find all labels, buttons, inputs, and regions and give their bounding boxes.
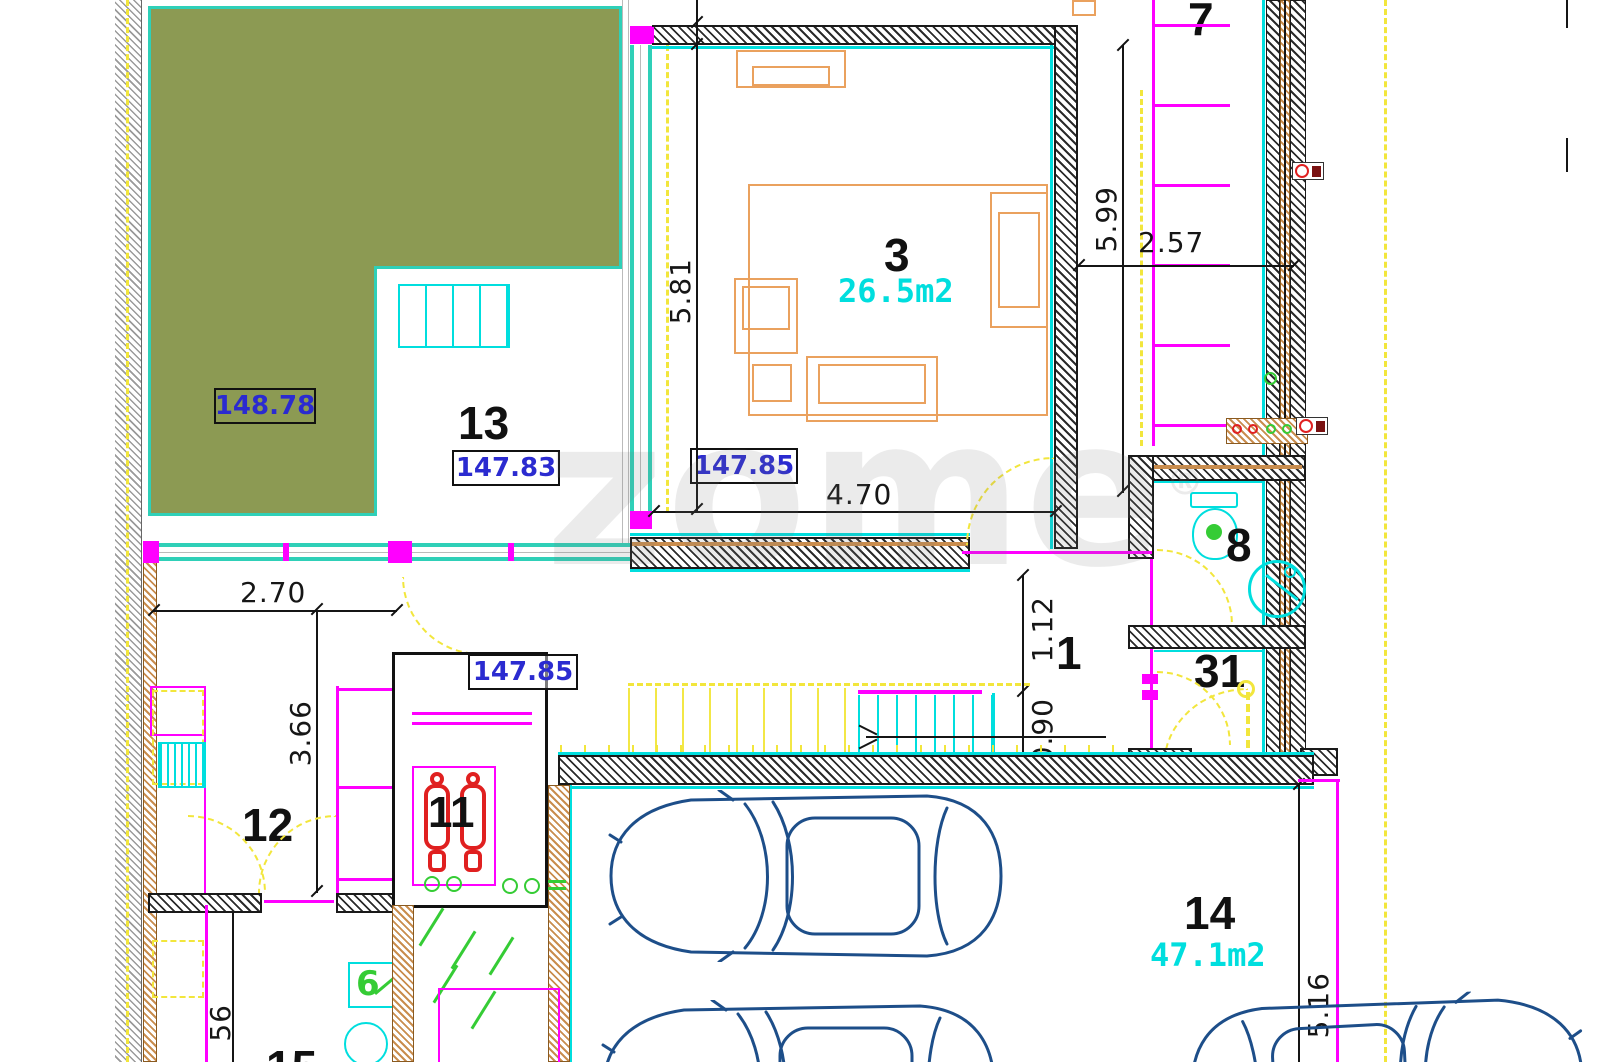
left-boundary-dashed-line (126, 0, 129, 1062)
lift-rail (412, 722, 532, 725)
dim-room7-height: 5.99 (1090, 186, 1123, 252)
window-tick (283, 543, 289, 561)
right-property-dashed-line (1384, 0, 1387, 1062)
elevation-box-room13: 147.83 (452, 450, 560, 486)
yellow-door-knob (1237, 680, 1255, 698)
floor-plan: 148.78 13 147.83 3 26.5m2 147.85 5.81 (0, 0, 1600, 1062)
bottom-partition-wall (392, 905, 414, 1062)
elevation-hall: 147.85 (473, 657, 573, 687)
wardrobe-shelf (1152, 24, 1230, 27)
car-top-view-partial (588, 1000, 1008, 1062)
corridor-cabinet-side (336, 686, 339, 894)
dim-room3-height: 5.81 (664, 258, 697, 324)
room12-bottom-door (264, 900, 334, 903)
dim-room12-height: 3.66 (284, 700, 317, 766)
stair-nosing (858, 690, 982, 694)
cabinet-shelf (336, 878, 396, 881)
wardrobe-shelf (1152, 184, 1230, 187)
green-mark (548, 880, 566, 883)
right-outer-wall (1266, 0, 1306, 778)
wall-edge (558, 786, 1314, 789)
sink-basin (1248, 560, 1306, 618)
dim-line-2.57 (1078, 265, 1294, 267)
lift-rail (412, 712, 532, 715)
cabinet-shelf (336, 688, 396, 691)
door-handle-block (1142, 690, 1158, 700)
elevation-box-hall: 147.85 (468, 654, 578, 690)
wardrobe-shelf (1152, 104, 1230, 107)
room3-top-wall (652, 25, 1056, 45)
room7-number: 7 (1188, 0, 1214, 46)
cabinet-shelf (336, 786, 396, 789)
valve-red (1232, 424, 1242, 434)
watermark-text: zome (545, 375, 1166, 613)
armchair-cushion (742, 286, 790, 330)
furniture-stub (1072, 0, 1096, 16)
green-mark (548, 887, 566, 890)
elevation-box-terrace: 148.78 (214, 388, 316, 424)
watermark: zome® (545, 392, 1206, 597)
wall-edge (1262, 0, 1265, 778)
far-right-edge-line (1566, 0, 1568, 28)
room14-number: 14 (1184, 886, 1235, 940)
room3-top-door-jamb (634, 27, 654, 43)
window-jamb (388, 541, 412, 563)
car-top-view (595, 790, 1015, 962)
window-tick (508, 543, 514, 561)
stairs-top-dashed (628, 683, 1030, 686)
vent-circle (446, 876, 462, 892)
valve-green (1282, 424, 1292, 434)
shrub-line (489, 937, 515, 976)
wall-fixture (1296, 417, 1328, 435)
wall-edge (652, 46, 1056, 49)
far-right-edge-line2 (1566, 138, 1568, 172)
sink-drain (1284, 566, 1296, 578)
room6-number: 6 (356, 964, 380, 1004)
dim-room7-width: 2.57 (1138, 226, 1204, 259)
sofa-right-cushion (998, 212, 1040, 308)
vent-circle (1264, 372, 1277, 385)
elevation-room13: 147.83 (456, 453, 556, 483)
valve-red (1248, 424, 1258, 434)
room15-number: 15 (266, 1040, 317, 1062)
car-top-view-partial (1174, 985, 1600, 1062)
vent-circle (424, 876, 440, 892)
stair-direction-line (866, 736, 1106, 738)
tv-set (752, 66, 830, 86)
room13-step-box (398, 284, 510, 348)
dim-bottom-partial: 56 (204, 1004, 237, 1042)
room13-number: 13 (458, 396, 509, 450)
door-handle-block (1142, 674, 1158, 684)
washing-machine (158, 742, 206, 788)
room12-bottom-wall-b (336, 893, 394, 913)
corridor-door-swing (402, 577, 480, 655)
garage-right-boundary-h (1298, 779, 1340, 782)
elevation-terrace: 148.78 (215, 391, 315, 421)
storage-outline (438, 988, 560, 1062)
window-jamb (143, 541, 159, 563)
wall-edge (570, 785, 572, 1062)
room8-number: 8 (1226, 518, 1252, 572)
room14-area: 47.1m2 (1150, 936, 1266, 974)
vent-circle (502, 878, 518, 894)
cabinet-dashed (152, 940, 204, 998)
wardrobe-shelf (1152, 344, 1230, 347)
room1-number: 1 (1056, 626, 1082, 680)
garage-top-wall (558, 755, 1314, 785)
wall-fixture (1292, 162, 1324, 180)
shrub-line (451, 931, 477, 970)
left-boundary-hatch (115, 0, 142, 1062)
vent-circle (524, 878, 540, 894)
toilet-drain (1206, 524, 1222, 540)
shrub-line (419, 908, 445, 947)
sink-circle (344, 1022, 388, 1062)
yellow-door-leaf (1246, 692, 1250, 760)
dim-line-2.70 (153, 610, 397, 612)
watermark-reg: ® (1166, 460, 1206, 504)
dim-room12-width: 2.70 (240, 576, 306, 609)
room3-area: 26.5m2 (838, 272, 954, 310)
room11-number: 11 (428, 788, 475, 838)
wall-edge (1154, 650, 1264, 652)
valve-green (1266, 424, 1276, 434)
